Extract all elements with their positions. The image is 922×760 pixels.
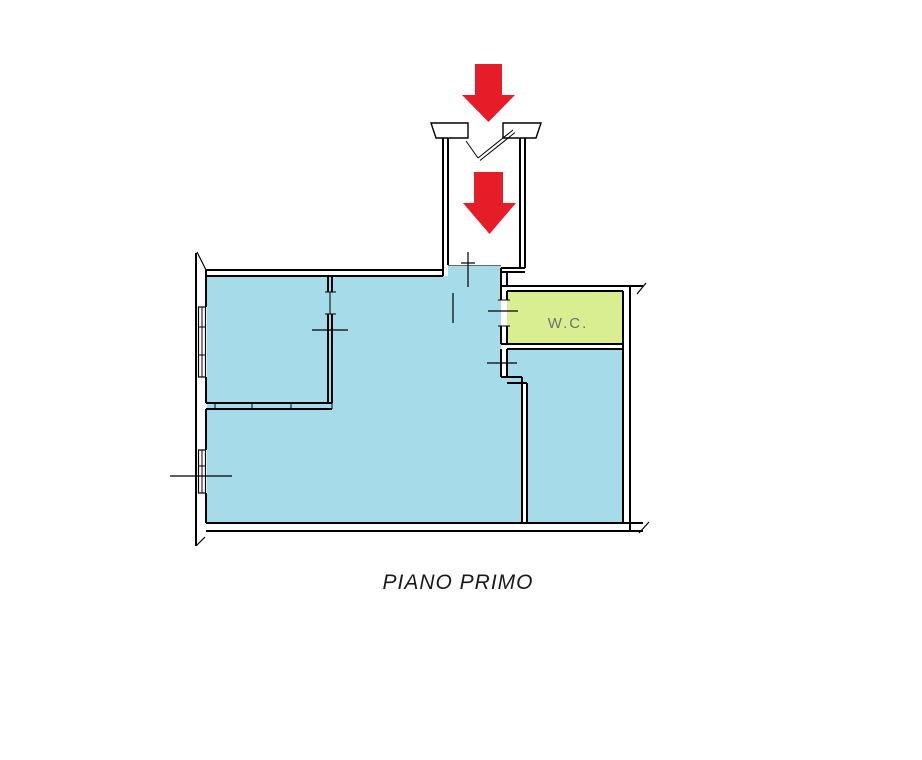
entrance-arrow-lower-icon bbox=[463, 172, 516, 234]
floor-caption: PIANO PRIMO bbox=[382, 571, 533, 594]
room-main-area bbox=[207, 265, 522, 523]
window-upper bbox=[198, 307, 206, 377]
room-fills bbox=[207, 265, 623, 523]
entrance-arrow-upper-icon bbox=[462, 64, 515, 122]
room-right-area bbox=[507, 349, 623, 523]
wc-room-label: W.C. bbox=[548, 315, 589, 332]
floor-plan-canvas: W.C. PIANO PRIMO bbox=[0, 0, 922, 760]
entry-door-swing bbox=[466, 130, 515, 161]
floor-plan-drawing: W.C. PIANO PRIMO bbox=[0, 0, 922, 760]
corridor-flare-right bbox=[503, 123, 541, 138]
corridor-flare-left bbox=[431, 123, 468, 138]
